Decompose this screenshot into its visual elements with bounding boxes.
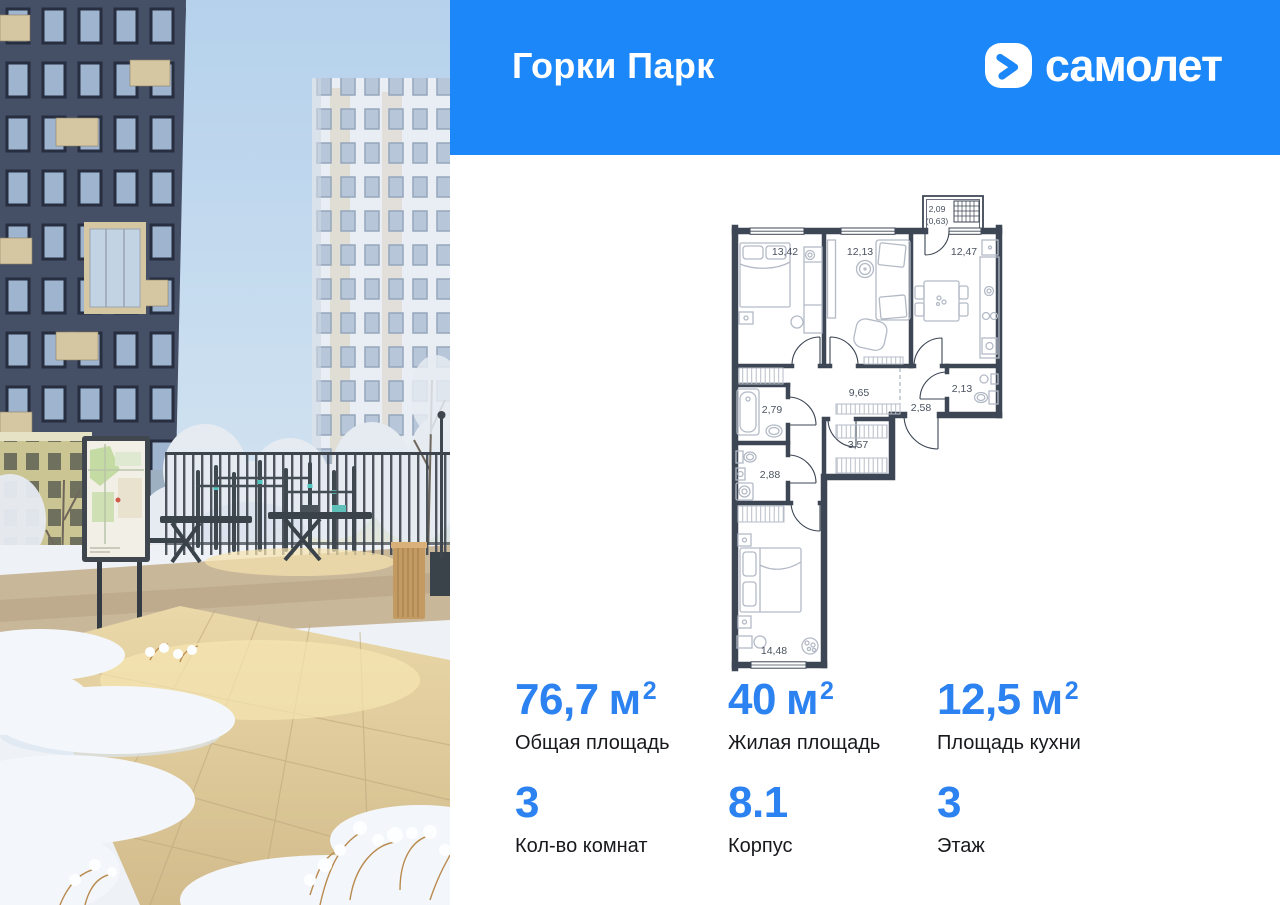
stat-total-area: 76,7м2 Общая площадь: [515, 677, 745, 755]
stat-value: 76,7м2: [515, 677, 745, 723]
room-area-label: 13,42: [772, 246, 798, 258]
stat-label: Жилая площадь: [728, 732, 958, 755]
room-area-label: 12,47: [951, 246, 977, 258]
floor-plan: 2,09 (0,63) 13,42 12,13 12,47 9,65 2,79 …: [723, 186, 1012, 674]
stat-kitchen-area: 12,5м2 Площадь кухни: [937, 677, 1167, 755]
stat-living-area: 40м2 Жилая площадь: [728, 677, 958, 755]
stat-rooms-count: 3 Кол-во комнат: [515, 780, 745, 858]
balcony-area-label: 2,09: [929, 204, 946, 214]
info-panel: Горки Парк самолет: [450, 0, 1280, 905]
room-area-label: 2,13: [952, 383, 973, 395]
stat-label: Общая площадь: [515, 732, 745, 755]
brand-wordmark: самолет: [1045, 43, 1222, 88]
stat-building: 8.1 Корпус: [728, 780, 958, 858]
samolet-logo-icon: [985, 43, 1032, 88]
stat-label: Этаж: [937, 835, 1167, 858]
stat-value: 8.1: [728, 780, 958, 826]
stat-floor: 3 Этаж: [937, 780, 1167, 858]
project-name: Горки Парк: [512, 45, 715, 87]
brand-logo: самолет: [985, 43, 1222, 88]
room-area-label: 12,13: [847, 246, 873, 258]
balcony-reduced-area-label: (0,63): [926, 216, 949, 226]
room-area-label: 2,88: [760, 469, 781, 481]
property-photo: [0, 0, 450, 905]
room-area-label: 3,57: [848, 439, 869, 451]
doors: [788, 231, 949, 531]
header-band: Горки Парк самолет: [450, 0, 1280, 155]
stat-value: 3: [515, 780, 745, 826]
stat-label: Корпус: [728, 835, 958, 858]
fence: [165, 452, 450, 555]
closets: [738, 357, 903, 522]
room-area-label: 9,65: [849, 387, 870, 399]
room-area-label: 2,58: [911, 402, 932, 414]
listing-card: Горки Парк самолет: [0, 0, 1280, 905]
stat-value: 3: [937, 780, 1167, 826]
room-area-label: 2,79: [762, 404, 783, 416]
stat-value: 12,5м2: [937, 677, 1167, 723]
stat-label: Кол-во комнат: [515, 835, 745, 858]
stat-label: Площадь кухни: [937, 732, 1167, 755]
room-area-label: 14,48: [761, 645, 787, 657]
stat-value: 40м2: [728, 677, 958, 723]
